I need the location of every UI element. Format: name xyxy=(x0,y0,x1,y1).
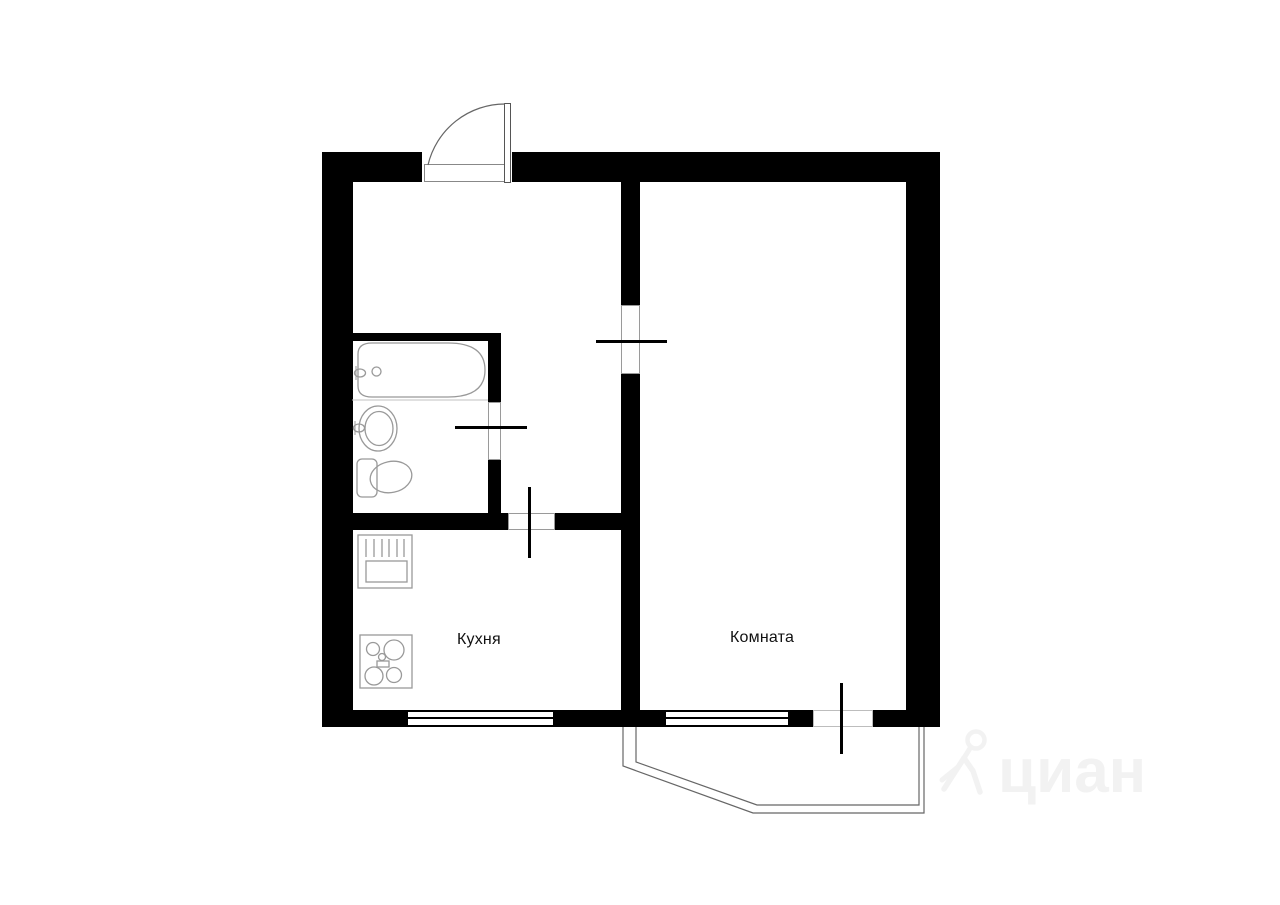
entrance-door-arc xyxy=(428,104,505,165)
cian-pin-person-icon xyxy=(942,732,985,793)
stove-icon xyxy=(360,635,412,688)
room-label-kitchen: Кухня xyxy=(457,631,501,649)
balcony-outline xyxy=(623,727,924,813)
room-label-room: Комната xyxy=(730,629,794,647)
kitchen-sink-dryer-icon xyxy=(358,535,412,588)
cian-watermark-text: циан xyxy=(998,741,1146,803)
toilet-icon xyxy=(357,457,415,497)
floor-plan: Кухня Комната циан xyxy=(0,0,1280,905)
bathroom-sink-icon xyxy=(354,406,398,451)
bathtub-icon xyxy=(352,343,488,400)
